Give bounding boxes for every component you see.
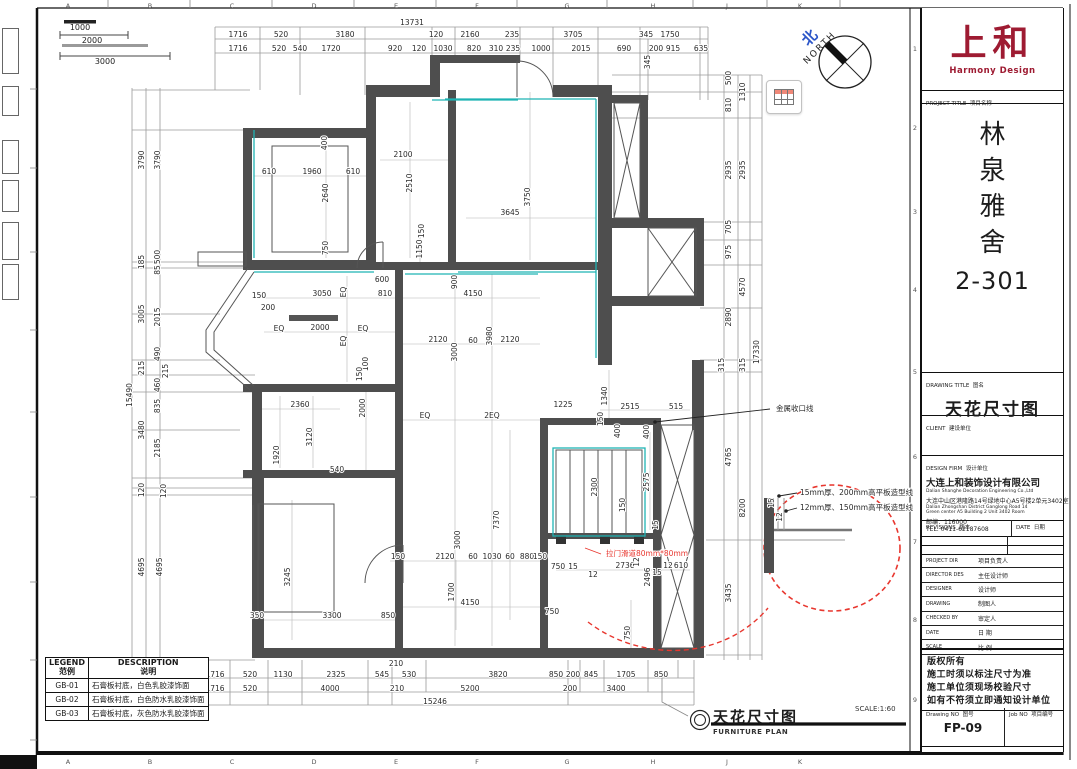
dim-label: 2935 <box>738 160 747 179</box>
dim-label: 8200 <box>738 498 747 517</box>
legend-col1-cn: 范例 <box>59 667 75 676</box>
grid-letter: G <box>564 758 569 766</box>
drawing-title-box: DRAWING TITLE 图名 天花尺寸图 <box>922 372 1063 416</box>
dim-label: 820 <box>467 44 482 53</box>
role-en: DIRECTOR DES <box>926 572 978 578</box>
dim-label: 635 <box>694 44 709 53</box>
plan-title: 天花尺寸图 <box>713 706 798 727</box>
dim-label: 2185 <box>153 438 162 457</box>
dim-label: 3750 <box>523 187 532 206</box>
dim-label: 1340 <box>600 386 609 405</box>
project-name-char: 舍 <box>922 225 1063 261</box>
dim-label: 60 <box>468 552 478 561</box>
dim-label: 1030 <box>482 552 501 561</box>
dim-label: 17330 <box>752 340 761 364</box>
dim-label: 1130 <box>273 670 292 679</box>
dim-label: 2325 <box>326 670 345 679</box>
dim-label: 4695 <box>155 557 164 576</box>
dim-label: 3000 <box>450 342 459 361</box>
dim-label: 15490 <box>125 383 134 407</box>
dim-label: 150 <box>618 498 627 513</box>
grid-letter: F <box>475 2 479 10</box>
grid-number: 9 <box>913 696 917 704</box>
dim-label: 1705 <box>616 670 635 679</box>
role-en: DATE <box>926 630 978 636</box>
dim-label: 3245 <box>283 567 292 586</box>
dim-label: 150 <box>355 367 364 382</box>
dim-label: 1920 <box>272 445 281 464</box>
dim-label: 2360 <box>290 400 309 409</box>
dim-label: 850 <box>381 611 396 620</box>
dim-label: 3000 <box>453 530 462 549</box>
dim-label: 15 <box>652 568 662 577</box>
legend-row: GB-01石膏板衬底，白色乳胶漆饰面 <box>46 678 209 692</box>
role-row: DRAWING制图人 <box>922 597 1063 611</box>
drawing-no-cn: 图号 <box>963 712 974 718</box>
grid-letter: A <box>66 758 71 766</box>
project-name-char: 雅 <box>922 189 1063 225</box>
dim-label: 1716 <box>228 30 247 39</box>
dim-label: 520 <box>243 670 258 679</box>
copyright-notes: 版权所有施工时须以标注尺寸为准施工单位须现场校验尺寸如有不符须立即通知设计单位 <box>922 648 1063 711</box>
dim-label: 13731 <box>400 18 424 27</box>
dim-label: 12 <box>588 570 598 579</box>
grid-letter: G <box>564 2 569 10</box>
dim-label: 845 <box>584 670 599 679</box>
dim-label: 210 <box>390 684 405 693</box>
dim-label: 2515 <box>620 402 639 411</box>
dim-label: 150 <box>533 552 548 561</box>
legend-row: GB-03石膏板衬底，灰色防水乳胶漆饰面 <box>46 706 209 720</box>
roles-rows: PROJECT DIR项目负责人DIRECTOR DES主任设计师DESIGNE… <box>922 554 1063 655</box>
dim-label: 400 <box>320 136 329 151</box>
dim-label: 2100 <box>393 150 412 159</box>
legend-code: GB-01 <box>46 678 89 692</box>
dim-label: 120 <box>412 44 427 53</box>
margin-mark-box <box>2 180 19 212</box>
legend-code: GB-03 <box>46 706 89 720</box>
dim-label: 915 <box>666 44 681 53</box>
dim-label: 1716 <box>228 44 247 53</box>
project-name-char: 林 <box>922 117 1063 153</box>
margin-mark-box <box>2 28 19 74</box>
dim-label: 4150 <box>460 598 479 607</box>
title-block: 上和 Harmony Design PROJECT TITLE 项目名称 林泉雅… <box>920 8 1064 752</box>
project-name-box: 林泉雅舍 2-301 <box>922 103 1063 373</box>
design-firm-cn: 设计单位 <box>966 466 988 472</box>
dim-label: 235 <box>505 30 520 39</box>
dim-label: 3480 <box>137 420 146 439</box>
grid-number: 8 <box>913 616 917 624</box>
dim-label: 520 <box>274 30 289 39</box>
copyright-note-line: 版权所有 <box>927 654 1063 667</box>
dim-label: 215 <box>161 364 170 379</box>
table-tool-button[interactable] <box>766 80 802 114</box>
dim-label: 515 <box>669 402 684 411</box>
dim-label: 150 <box>417 224 426 239</box>
dim-label: 3435 <box>724 583 733 602</box>
dim-label: 2120 <box>500 335 519 344</box>
grid-letter: J <box>725 2 728 10</box>
client-en: CLIENT <box>926 426 945 432</box>
dim-label: 4765 <box>724 447 733 466</box>
dim-label: 810 <box>724 98 733 113</box>
legend-row: GB-02石膏板衬底，白色防水乳胶漆饰面 <box>46 692 209 706</box>
grid-letter: D <box>311 758 316 766</box>
dim-label: 310 <box>489 44 504 53</box>
grid-letter: A <box>66 2 71 10</box>
dim-label: 540 <box>330 465 345 474</box>
revisions-en: REVISIONS <box>926 525 956 531</box>
legend-col2-cn: 说明 <box>140 667 156 676</box>
dim-label: 5200 <box>460 684 479 693</box>
role-cn: 项目负责人 <box>978 556 1008 565</box>
dim-label: 3005 <box>137 304 146 323</box>
dim-label: 3400 <box>606 684 625 693</box>
grid-number: 7 <box>913 538 917 546</box>
dim-label: 900 <box>450 275 459 290</box>
dim-label: 4000 <box>320 684 339 693</box>
dim-label: 150 <box>252 291 267 300</box>
annotation-label: 拉门滑道80mm*80mm <box>606 548 688 558</box>
dim-label: 150 <box>391 552 406 561</box>
dim-label: 金属收口线 <box>776 403 814 413</box>
grid-letter: K <box>798 758 803 766</box>
dim-label: 185 <box>137 255 146 270</box>
dim-label: 530 <box>402 670 417 679</box>
drawing-no-en: Drawing NO <box>926 712 959 718</box>
dim-label: EQ <box>274 324 285 333</box>
margin-mark-box <box>2 222 19 260</box>
dim-label: 750 <box>623 626 632 641</box>
dim-label: 600 <box>375 275 390 284</box>
dim-label: 750 <box>545 607 560 616</box>
dim-label: 2120 <box>428 335 447 344</box>
dim-label: 2120 <box>435 552 454 561</box>
dim-label: 3790 <box>137 150 146 169</box>
role-cn: 制图人 <box>978 599 996 608</box>
plan-subtitle: FURNITURE PLAN <box>713 728 788 736</box>
role-en: CHECKED BY <box>926 615 978 621</box>
grid-number: 3 <box>913 208 917 216</box>
legend-desc: 石膏板衬底，白色乳胶漆饰面 <box>89 678 209 692</box>
margin-mark-box <box>2 264 19 300</box>
dim-label: 545 <box>375 670 390 679</box>
dim-label: 850 <box>549 670 564 679</box>
legend-table: LEGEND 范例 DESCRIPTION 说明 GB-01石膏板衬底，白色乳胶… <box>45 657 209 721</box>
project-name-char: 泉 <box>922 153 1063 189</box>
dim-label: 200 <box>563 684 578 693</box>
dim-label: 400 <box>642 425 651 440</box>
dim-label: 2935 <box>724 160 733 179</box>
dim-label: 400 <box>613 424 622 439</box>
dim-label: 2015 <box>571 44 590 53</box>
drawing-number-box: Drawing NO 图号 FP-09 Job NO 项目编号 <box>922 708 1063 747</box>
grid-number: 5 <box>913 368 917 376</box>
rev-date-en: DATE <box>1016 525 1030 531</box>
copyright-note-line: 施工时须以标注尺寸为准 <box>927 667 1063 680</box>
dim-label: 2510 <box>405 173 414 192</box>
dim-label: 4695 <box>137 557 146 576</box>
dim-label: 1225 <box>553 400 572 409</box>
dim-label: EQ <box>339 336 348 347</box>
dim-label: 315 <box>717 358 726 373</box>
dim-label: 610 <box>674 561 689 570</box>
role-cn: 审定人 <box>978 614 996 623</box>
logo-box: 上和 Harmony Design <box>922 8 1063 91</box>
dim-label: 3120 <box>305 427 314 446</box>
margin-mark-box <box>2 140 19 174</box>
dim-label: 235 <box>506 44 521 53</box>
dim-label: 4150 <box>463 289 482 298</box>
grid-letter: E <box>394 758 398 766</box>
dim-label: 2015 <box>153 307 162 326</box>
dim-label: 120 <box>137 483 146 498</box>
grid-number: 2 <box>913 124 917 132</box>
logo-cn: 上和 <box>922 14 1063 66</box>
dim-label: 60 <box>505 552 515 561</box>
job-no-cn: 项目编号 <box>1031 712 1053 718</box>
scalebar-3000: 3000 <box>85 57 125 66</box>
north-arrow-icon: 北 NORTH <box>789 17 871 88</box>
grid-letter: H <box>651 2 656 10</box>
dim-label: 835 <box>153 399 162 414</box>
role-cn: 设计师 <box>978 585 996 594</box>
dim-label: 850 <box>654 670 669 679</box>
design-firm-en: DESIGN FIRM <box>926 466 962 472</box>
grid-letter: K <box>798 2 803 10</box>
dim-label: 345 <box>643 55 652 70</box>
dim-label: 85 <box>153 265 162 275</box>
legend-code: GB-02 <box>46 692 89 706</box>
dim-label: 4570 <box>738 277 747 296</box>
dim-label: 15 <box>651 520 660 530</box>
role-cn: 日 期 <box>978 628 992 637</box>
dim-label: 1310 <box>738 82 747 101</box>
dim-label: 1030 <box>433 44 452 53</box>
dim-label: 2EQ <box>484 411 500 420</box>
dim-label: 750 <box>321 241 330 256</box>
role-row: DESIGNER设计师 <box>922 583 1063 597</box>
table-icon <box>774 89 794 105</box>
grid-letter: C <box>230 758 235 766</box>
dim-label: 2300 <box>590 477 599 496</box>
legend-col1-en: LEGEND <box>49 658 85 667</box>
drawing-title-en: DRAWING TITLE <box>926 383 969 389</box>
floor-plan-canvas: 北 NORTH 13731171652031801202160235370534… <box>0 0 1077 769</box>
role-row: CHECKED BY审定人 <box>922 612 1063 626</box>
dim-label: 1960 <box>302 167 321 176</box>
grid-number: 6 <box>913 453 917 461</box>
dim-label: 3645 <box>500 208 519 217</box>
grid-number: 4 <box>913 286 917 294</box>
dim-label: 2496 <box>643 567 652 586</box>
dim-label: 690 <box>617 44 632 53</box>
dim-label: 60 <box>468 336 478 345</box>
scalebar-1000: 1000 <box>60 23 100 32</box>
drawing-sheet: 北 NORTH 13731171652031801202160235370534… <box>0 0 1077 769</box>
dim-label: 12 <box>663 561 673 570</box>
dim-label: 1000 <box>531 44 550 53</box>
dim-label: 810 <box>378 289 393 298</box>
dim-label: EQ <box>358 324 369 333</box>
project-unit: 2-301 <box>922 267 1063 295</box>
project-title-row: PROJECT TITLE 项目名称 <box>922 90 1063 104</box>
dim-label: 1700 <box>447 582 456 601</box>
role-en: PROJECT DIR <box>926 558 978 564</box>
dim-label: 540 <box>293 44 308 53</box>
copyright-note-line: 施工单位须现场校验尺寸 <box>927 680 1063 693</box>
dim-label: EQ <box>420 411 431 420</box>
grid-letter: E <box>394 2 398 10</box>
rev-date-cn: 日期 <box>1034 525 1045 531</box>
grid-letter: B <box>148 2 152 10</box>
dim-label: 3300 <box>322 611 341 620</box>
dim-label: 750 <box>551 562 566 571</box>
dim-label: 2000 <box>358 398 367 417</box>
scalebar-2000: 2000 <box>72 36 112 45</box>
role-row: PROJECT DIR项目负责人 <box>922 554 1063 568</box>
client-cn: 建设单位 <box>949 426 971 432</box>
drawing-title-cn: 图名 <box>973 383 984 389</box>
dim-label: 2160 <box>460 30 479 39</box>
dim-label: 705 <box>724 220 733 235</box>
grid-letter: H <box>651 758 656 766</box>
margin-mark-box <box>2 86 19 116</box>
job-no-en: Job NO <box>1009 712 1028 718</box>
dim-label: 1750 <box>660 30 679 39</box>
dim-label: 520 <box>243 684 258 693</box>
dim-label: 1720 <box>321 44 340 53</box>
address-en2: Green center A5 Building 2 Unit 3402 Roo… <box>926 510 1063 515</box>
dim-label: 200 <box>566 670 581 679</box>
legend-col2-en: DESCRIPTION <box>118 658 179 667</box>
dim-label: 610 <box>262 167 277 176</box>
dim-label: 15246 <box>423 697 447 706</box>
dim-label: 7370 <box>492 510 501 529</box>
dim-label: 345 <box>639 30 654 39</box>
dim-label: 3980 <box>485 326 494 345</box>
dim-label: 15 <box>767 498 776 508</box>
grid-letter: F <box>475 758 479 766</box>
dimension-lines <box>132 27 762 705</box>
logo-en: Harmony Design <box>922 66 1063 76</box>
dim-label: 12mm厚、150mm高平板造型线 <box>800 502 914 512</box>
dim-label: 975 <box>724 245 733 260</box>
dimension-labels: 1373117165203180120216023537053451750171… <box>125 18 914 706</box>
dim-label: 15 <box>568 562 578 571</box>
dim-label: 2890 <box>724 307 733 326</box>
dim-label: 1150 <box>415 239 424 258</box>
dim-label: 120 <box>159 484 168 499</box>
dim-label: 12 <box>632 557 641 567</box>
dim-label: 3050 <box>312 289 331 298</box>
revisions-cn: 版本 <box>959 525 970 531</box>
dim-label: 500 <box>153 250 162 265</box>
dim-label: 215 <box>137 361 146 376</box>
grid-letter: J <box>725 758 728 766</box>
role-row: DIRECTOR DES主任设计师 <box>922 568 1063 582</box>
dim-label: 3820 <box>488 670 507 679</box>
grid-letter: C <box>230 2 235 10</box>
grid-letter: D <box>311 2 316 10</box>
role-row: DATE日 期 <box>922 626 1063 640</box>
dim-label: 12 <box>775 512 784 522</box>
plan-scale: SCALE:1:60 <box>855 705 896 713</box>
dim-label: 150 <box>596 412 605 427</box>
design-firm-box: DESIGN FIRM 设计单位 大连上和装饰设计有限公司 Dalian Sha… <box>922 455 1063 521</box>
role-en: DRAWING <box>926 601 978 607</box>
dim-label: 200 <box>649 44 664 53</box>
dim-label: 500 <box>724 71 733 86</box>
revisions-header: REVISIONS 版本 DATE 日期 <box>922 520 1063 537</box>
dim-label: EQ <box>339 287 348 298</box>
grid-number: 1 <box>913 45 917 53</box>
dim-label: 200 <box>261 303 276 312</box>
dim-label: 490 <box>153 347 162 362</box>
role-cn: 主任设计师 <box>978 571 1008 580</box>
dim-label: 210 <box>389 659 404 668</box>
dim-label: 2640 <box>321 183 330 202</box>
dim-label: 120 <box>429 30 444 39</box>
dim-label: 920 <box>388 44 403 53</box>
copyright-note-line: 如有不符须立即通知设计单位 <box>927 693 1063 706</box>
legend-desc: 石膏板衬底，白色防水乳胶漆饰面 <box>89 692 209 706</box>
legend-desc: 石膏板衬底，灰色防水乳胶漆饰面 <box>89 706 209 720</box>
company-cn: 大连上和装饰设计有限公司 <box>926 475 1063 489</box>
dim-label: 460 <box>153 378 162 393</box>
drawing-no-value: FP-09 <box>922 721 1004 735</box>
client-box: CLIENT 建设单位 <box>922 415 1063 456</box>
address-cn: 大连中山区港隆路14号绿地中心A5号楼2单元3402室 <box>926 496 1063 505</box>
dim-label: 3180 <box>335 30 354 39</box>
role-en: DESIGNER <box>926 586 978 592</box>
dim-label: 2575 <box>642 472 651 491</box>
dim-label: 3790 <box>153 150 162 169</box>
dim-label: 15mm厚、200mm高平板造型线 <box>800 487 914 497</box>
dim-label: 350 <box>250 611 265 620</box>
dim-label: 3705 <box>563 30 582 39</box>
dim-label: 520 <box>272 44 287 53</box>
dim-label: 610 <box>346 167 361 176</box>
dim-label: 2000 <box>310 323 329 332</box>
grid-letter: B <box>148 758 152 766</box>
company-en: Dalian Shanghe Decoration Engineering Co… <box>926 489 1063 494</box>
dim-label: 315 <box>738 358 747 373</box>
